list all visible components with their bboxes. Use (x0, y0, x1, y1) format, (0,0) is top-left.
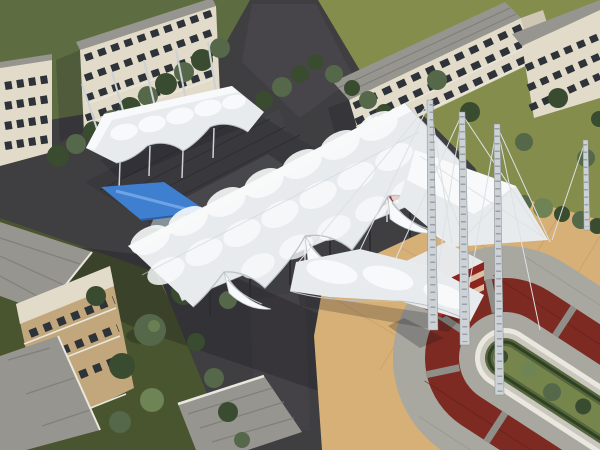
aerial-render (0, 0, 600, 450)
render-canvas (0, 0, 600, 450)
building-shadow (56, 50, 84, 142)
apartment-block-left-edge (0, 54, 52, 166)
